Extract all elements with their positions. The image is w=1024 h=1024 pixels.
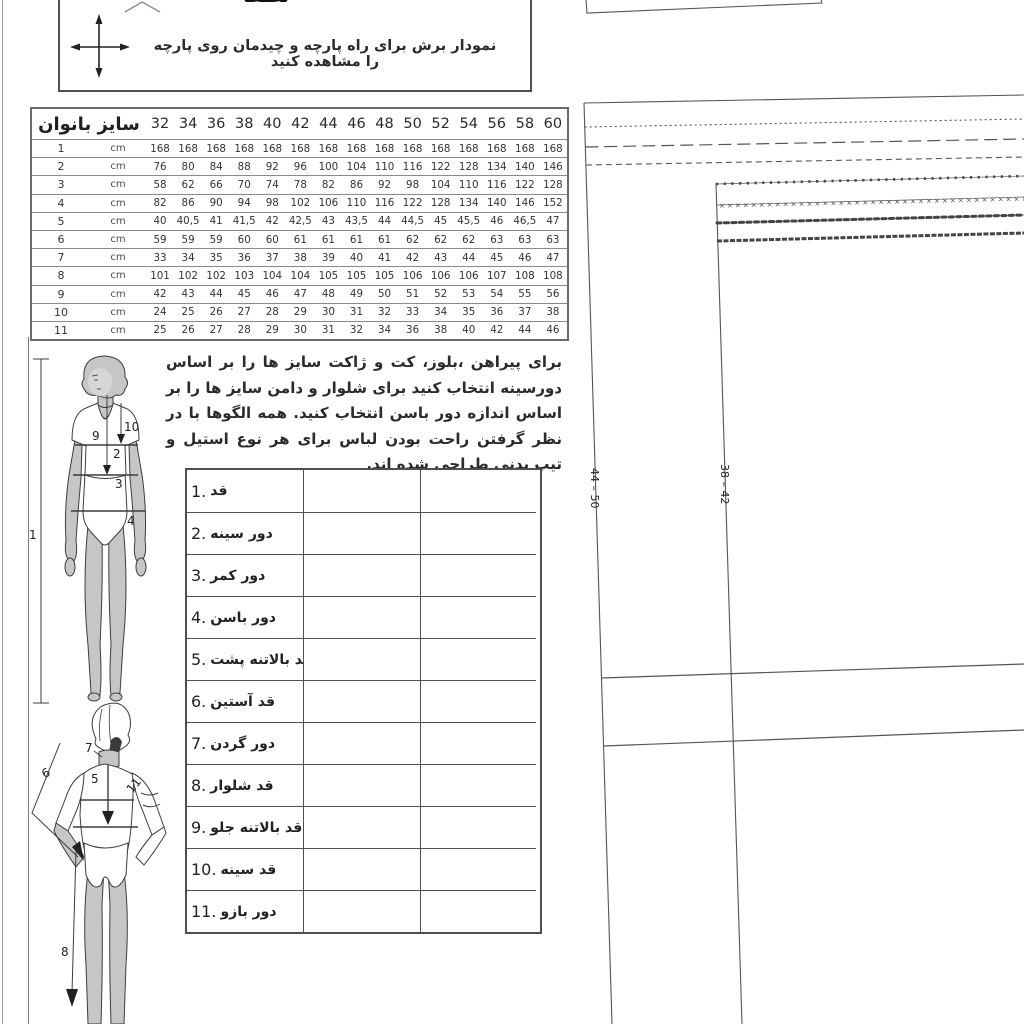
size-value-cell: 34 [174,252,202,264]
size-value-cell: 33 [146,252,174,264]
size-table-row: 1cm1681681681681681681681681681681681681… [32,139,567,157]
size-value-cell: 61 [342,234,370,246]
back-left-arm [56,773,84,831]
measurement-number: 2. [191,524,206,543]
front-left-foot [88,693,100,701]
measurement-empty-cell [303,764,420,806]
measurement-empty-cell [303,554,420,596]
measurement-empty-cell [420,638,536,680]
row-unit: cm [90,270,146,281]
size-value-cell: 146 [511,197,539,209]
size-value-cell: 168 [146,143,174,155]
size-value-cell: 63 [539,234,567,246]
size-table-row: 4cm8286909498102106110116122128134140146… [32,194,567,212]
size-value-cell: 70 [230,179,258,191]
size-table-row: 3cm58626670747882869298104110116122128 [32,175,567,193]
measurement-label: دور سینه [210,526,273,542]
pattern-cross-line-1 [602,664,1024,678]
measurement-empty-cell [420,764,536,806]
size-value-cell: 26 [174,324,202,336]
size-column-header: 52 [427,116,455,132]
size-value-cell: 108 [511,270,539,282]
measurement-label-cell: 6.قد آستین [187,680,303,722]
measurement-table: 1.قد2.دور سینه3.دور کمر4.دور باسن5.قد با… [185,468,542,934]
measurement-empty-cell [420,806,536,848]
measurement-number: 5. [191,650,206,669]
size-value-cell: 122 [427,161,455,173]
size-value-cell: 66 [202,179,230,191]
trouser-arrow [66,850,78,1007]
size-value-cell: 152 [539,197,567,209]
row-unit: cm [90,252,146,263]
size-value-cell: 62 [427,234,455,246]
measurement-label: قد آستین [210,694,275,710]
size-value-cell: 55 [511,288,539,300]
size-value-cell: 42 [146,288,174,300]
pattern-cross-line-2 [604,730,1024,746]
front-face [88,368,112,396]
size-value-cell: 56 [539,288,567,300]
measurement-label: قد بالاتنه جلو [210,820,302,836]
mark-bust-length: 10 [124,420,139,434]
size-value-cell: 102 [202,270,230,282]
size-value-cell: 104 [286,270,314,282]
size-value-cell: 26 [202,306,230,318]
front-left-arm [65,440,82,561]
size-value-cell: 25 [146,324,174,336]
size-value-cell: 98 [399,179,427,191]
measurement-empty-cell [303,722,420,764]
size-value-cell: 43,5 [342,215,370,227]
size-value-cell: 82 [146,197,174,209]
row-unit: cm [90,289,146,300]
size-value-cell: 45,5 [455,215,483,227]
row-number: 3 [32,178,90,191]
pattern-sheet-page: لطفا نمودار برش برای راه پارچه و چیدمان … [0,0,1024,1024]
measurement-empty-cell [420,470,536,512]
cutting-note-text: نمودار برش برای راه پارچه و چیدمان روی پ… [150,38,500,70]
mark-neck: 7 [85,741,93,755]
size-value-cell: 116 [371,197,399,209]
size-value-cell: 51 [399,288,427,300]
size-value-cell: 107 [483,270,511,282]
measurement-number: 8. [191,776,206,795]
measurement-label: قد [210,483,227,499]
size-value-cell: 128 [427,197,455,209]
size-value-cell: 168 [511,143,539,155]
size-column-header: 40 [258,116,286,132]
size-value-cell: 29 [286,306,314,318]
size-value-cell: 31 [342,306,370,318]
size-value-cell: 59 [202,234,230,246]
size-value-cell: 36 [399,324,427,336]
measurement-label: قد شلوار [210,778,273,794]
size-range-left: 44 – 50 [588,468,601,509]
grading-line-chain [717,233,1024,241]
size-value-cell: 140 [511,161,539,173]
size-value-cell: 104 [342,161,370,173]
row-number: 6 [32,233,90,246]
size-value-cell: 60 [258,234,286,246]
size-value-cell: 168 [427,143,455,155]
size-value-cell: 27 [202,324,230,336]
size-value-cell: 46 [483,215,511,227]
size-value-cell: 108 [539,270,567,282]
mark-back-bodice: 5 [91,772,99,786]
size-value-cell: 50 [371,288,399,300]
size-selection-paragraph: برای پیراهن ،بلوز، کت و ژاکت سایز ها را … [166,350,562,478]
size-value-cell: 44 [455,252,483,264]
size-value-cell: 42 [399,252,427,264]
size-value-cell: 45 [427,215,455,227]
size-value-cell: 34 [427,306,455,318]
size-value-cell: 38 [539,306,567,318]
size-value-cell: 41 [202,215,230,227]
size-value-cell: 102 [174,270,202,282]
measurement-empty-cell [420,848,536,890]
size-value-cell: 53 [455,288,483,300]
measurement-empty-cell [420,722,536,764]
size-value-cell: 31 [314,324,342,336]
size-value-cell: 110 [342,197,370,209]
row-number: 10 [32,306,90,319]
row-number: 9 [32,288,90,301]
size-value-cell: 88 [230,161,258,173]
size-value-cell: 36 [483,306,511,318]
size-table: سایز بانوان 3234363840424446485052545658… [30,107,569,341]
size-table-row: 8cm1011021021031041041051051051061061061… [32,266,567,284]
size-value-cell: 43 [427,252,455,264]
grading-line-dotted [585,119,1024,127]
measurement-number: 4. [191,608,206,627]
measurement-number: 7. [191,734,206,753]
row-number: 7 [32,251,90,264]
measurement-label: دور بازو [220,904,276,920]
size-value-cell: 116 [399,161,427,173]
front-right-leg [109,525,126,695]
size-value-cell: 168 [174,143,202,155]
size-value-cell: 122 [399,197,427,209]
size-value-cell: 62 [399,234,427,246]
size-value-cell: 168 [483,143,511,155]
size-value-cell: 140 [483,197,511,209]
row-number: 5 [32,215,90,228]
size-value-cell: 34 [371,324,399,336]
row-unit: cm [90,325,146,336]
size-value-cell: 27 [230,306,258,318]
front-right-arm [129,440,146,561]
size-value-cell: 28 [230,324,258,336]
size-value-cell: 84 [202,161,230,173]
size-value-cell: 46 [258,288,286,300]
size-value-cell: 60 [230,234,258,246]
size-value-cell: 134 [483,161,511,173]
size-value-cell: 86 [342,179,370,191]
size-value-cell: 62 [174,179,202,191]
size-value-cell: 98 [258,197,286,209]
size-value-cell: 36 [230,252,258,264]
row-number: 1 [32,142,90,155]
measurement-empty-cell [420,680,536,722]
size-value-cell: 61 [314,234,342,246]
measurement-label-cell: 10.قد سینه [187,848,303,890]
size-value-cell: 168 [342,143,370,155]
measurement-label: دور باسن [210,610,276,626]
size-value-cell: 40 [342,252,370,264]
size-value-cell: 38 [427,324,455,336]
grading-line-dash [586,157,1024,165]
size-value-cell: 128 [539,179,567,191]
size-value-cell: 54 [483,288,511,300]
size-value-cell: 35 [455,306,483,318]
size-value-cell: 63 [511,234,539,246]
size-column-header: 60 [539,116,567,132]
size-value-cell: 103 [230,270,258,282]
size-value-cell: 40 [146,215,174,227]
front-right-hand [136,558,146,576]
size-value-cell: 106 [455,270,483,282]
size-column-header: 34 [174,116,202,132]
size-value-cell: 62 [455,234,483,246]
measurement-empty-cell [420,512,536,554]
pattern-piece-sliver [586,0,822,13]
size-value-cell: 106 [427,270,455,282]
size-value-cell: 122 [511,179,539,191]
size-value-cell: 45 [483,252,511,264]
size-value-cell: 74 [258,179,286,191]
size-value-cell: 116 [483,179,511,191]
size-table-row: 6cm595959606061616161626262636363 [32,230,567,248]
mark-bust: 2 [113,447,121,461]
size-value-cell: 128 [455,161,483,173]
size-value-cell: 47 [539,252,567,264]
size-value-cell: 24 [146,306,174,318]
measurement-label-cell: 9.قد بالاتنه جلو [187,806,303,848]
size-column-header: 42 [286,116,314,132]
pattern-top-edge [584,95,1024,103]
size-value-cell: 42 [483,324,511,336]
size-value-cell: 41 [371,252,399,264]
measurement-empty-cell [420,596,536,638]
measurement-empty-cell [303,806,420,848]
measurement-label: دور کمر [210,568,265,584]
size-value-cell: 32 [342,324,370,336]
size-value-cell: 59 [146,234,174,246]
size-column-header: 36 [202,116,230,132]
measurement-number: 6. [191,692,206,711]
size-value-cell: 96 [286,161,314,173]
size-value-cell: 61 [286,234,314,246]
size-value-cell: 146 [539,161,567,173]
row-number: 8 [32,269,90,282]
measurement-label-cell: 2.دور سینه [187,512,303,554]
measurement-empty-cell [303,512,420,554]
size-value-cell: 47 [286,288,314,300]
size-column-header: 58 [511,116,539,132]
mark-waist: 3 [115,477,123,491]
size-value-cell: 44 [511,324,539,336]
size-value-cell: 63 [483,234,511,246]
row-unit: cm [90,198,146,209]
size-value-cell: 45 [230,288,258,300]
measurement-label: دور گردن [210,736,275,752]
size-column-header: 38 [230,116,258,132]
size-value-cell: 37 [511,306,539,318]
pattern-left-edge [584,103,612,1024]
size-table-row: 10cm242526272829303132333435363738 [32,303,567,321]
size-table-row: 5cm4040,54141,54242,54343,54444,54545,54… [32,212,567,230]
size-value-cell: 168 [286,143,314,155]
size-value-cell: 40 [455,324,483,336]
page-left-border [2,0,3,1024]
size-value-cell: 168 [399,143,427,155]
size-value-cell: 25 [174,306,202,318]
measurement-label-cell: 5.قد بالاتنه پشت [187,638,303,680]
size-value-cell: 43 [314,215,342,227]
size-value-cell: 46 [511,252,539,264]
size-value-cell: 134 [455,197,483,209]
measurement-empty-cell [303,848,420,890]
size-value-cell: 82 [314,179,342,191]
size-value-cell: 90 [202,197,230,209]
size-value-cell: 104 [427,179,455,191]
size-value-cell: 104 [258,270,286,282]
row-unit: cm [90,216,146,227]
size-column-header: 46 [342,116,370,132]
mark-front-bodice: 9 [92,429,100,443]
size-value-cell: 92 [258,161,286,173]
size-value-cell: 92 [371,179,399,191]
front-left-leg [85,525,102,695]
row-number: 4 [32,197,90,210]
size-value-cell: 100 [314,161,342,173]
measurement-empty-cell [420,554,536,596]
size-table-row: 7cm333435363738394041424344454647 [32,248,567,266]
size-value-cell: 58 [146,179,174,191]
measurement-label-cell: 1.قد [187,470,303,512]
size-value-cell: 42 [258,215,286,227]
size-value-cell: 28 [258,306,286,318]
size-value-cell: 29 [258,324,286,336]
row-unit: cm [90,143,146,154]
size-table-row: 9cm424344454647484950515253545556 [32,285,567,303]
size-value-cell: 40,5 [174,215,202,227]
size-value-cell: 43 [174,288,202,300]
size-value-cell: 30 [314,306,342,318]
size-value-cell: 44 [371,215,399,227]
measurement-label-cell: 4.دور باسن [187,596,303,638]
measurement-number: 1. [191,482,206,501]
size-column-header: 54 [455,116,483,132]
size-value-cell: 168 [371,143,399,155]
row-unit: cm [90,161,146,172]
back-bodysuit [84,843,128,887]
size-column-header: 48 [371,116,399,132]
size-value-cell: 44 [202,288,230,300]
measurement-empty-cell [303,890,420,932]
measurement-label-cell: 7.دور گردن [187,722,303,764]
mark-hip: 4 [127,514,135,528]
front-left-hand [65,558,75,576]
measurement-label-cell: 11.دور بازو [187,890,303,932]
size-value-cell: 59 [174,234,202,246]
measurement-number: 9. [191,818,206,837]
row-number: 2 [32,160,90,173]
size-table-title: سایز بانوان [32,114,146,135]
measurement-label-cell: 3.دور کمر [187,554,303,596]
row-number: 11 [32,324,90,337]
size-value-cell: 76 [146,161,174,173]
row-unit: cm [90,179,146,190]
grainline-cross-arrows-icon [70,13,132,79]
size-line-x-marks: ××××××××××××××××××××××××××××××××××××××××… [719,193,1024,210]
size-table-row: 2cm7680848892961001041101161221281341401… [32,157,567,175]
size-value-cell: 35 [202,252,230,264]
size-value-cell: 32 [371,306,399,318]
size-value-cell: 168 [314,143,342,155]
size-value-cell: 80 [174,161,202,173]
measurement-empty-cell [303,596,420,638]
size-value-cell: 106 [399,270,427,282]
size-value-cell: 105 [371,270,399,282]
size-value-cell: 30 [286,324,314,336]
size-value-cell: 38 [286,252,314,264]
size-value-cell: 37 [258,252,286,264]
pattern-diagram: ××××××××××××××××××××××××××××××××××××××××… [565,0,1024,1024]
size-value-cell: 110 [455,179,483,191]
measurement-empty-cell [420,890,536,932]
size-value-cell: 46 [539,324,567,336]
grading-line-longdash [585,139,1024,147]
size-value-cell: 78 [286,179,314,191]
pattern-size-line-38-42 [716,183,742,1024]
measurement-label-cell: 8.قد شلوار [187,764,303,806]
size-value-cell: 42,5 [286,215,314,227]
front-right-foot [110,693,122,701]
size-value-cell: 47 [539,215,567,227]
size-value-cell: 44,5 [399,215,427,227]
size-value-cell: 168 [258,143,286,155]
size-value-cell: 106 [314,197,342,209]
mark-trouser: 8 [61,945,69,959]
grading-line-ovals [717,215,1024,223]
size-table-row: 11cm252627282930313234363840424446 [32,321,567,339]
size-column-header: 44 [314,116,342,132]
measurement-number: 3. [191,566,206,585]
row-unit: cm [90,234,146,245]
measurement-label: قد بالاتنه پشت [210,652,303,668]
size-range-right: 38 – 42 [718,464,731,505]
size-value-cell: 39 [314,252,342,264]
size-value-cell: 168 [455,143,483,155]
measurement-number: 10. [191,860,216,879]
size-column-header: 50 [399,116,427,132]
size-value-cell: 105 [314,270,342,282]
size-value-cell: 94 [230,197,258,209]
size-value-cell: 52 [427,288,455,300]
size-value-cell: 61 [371,234,399,246]
size-value-cell: 41,5 [230,215,258,227]
partial-top-word: لطفا [236,0,296,6]
size-column-header: 56 [483,116,511,132]
size-value-cell: 48 [314,288,342,300]
size-value-cell: 168 [230,143,258,155]
size-value-cell: 110 [371,161,399,173]
size-value-cell: 33 [399,306,427,318]
size-table-header: سایز بانوان 3234363840424446485052545658… [32,109,567,139]
measurement-empty-cell [303,470,420,512]
size-value-cell: 86 [174,197,202,209]
